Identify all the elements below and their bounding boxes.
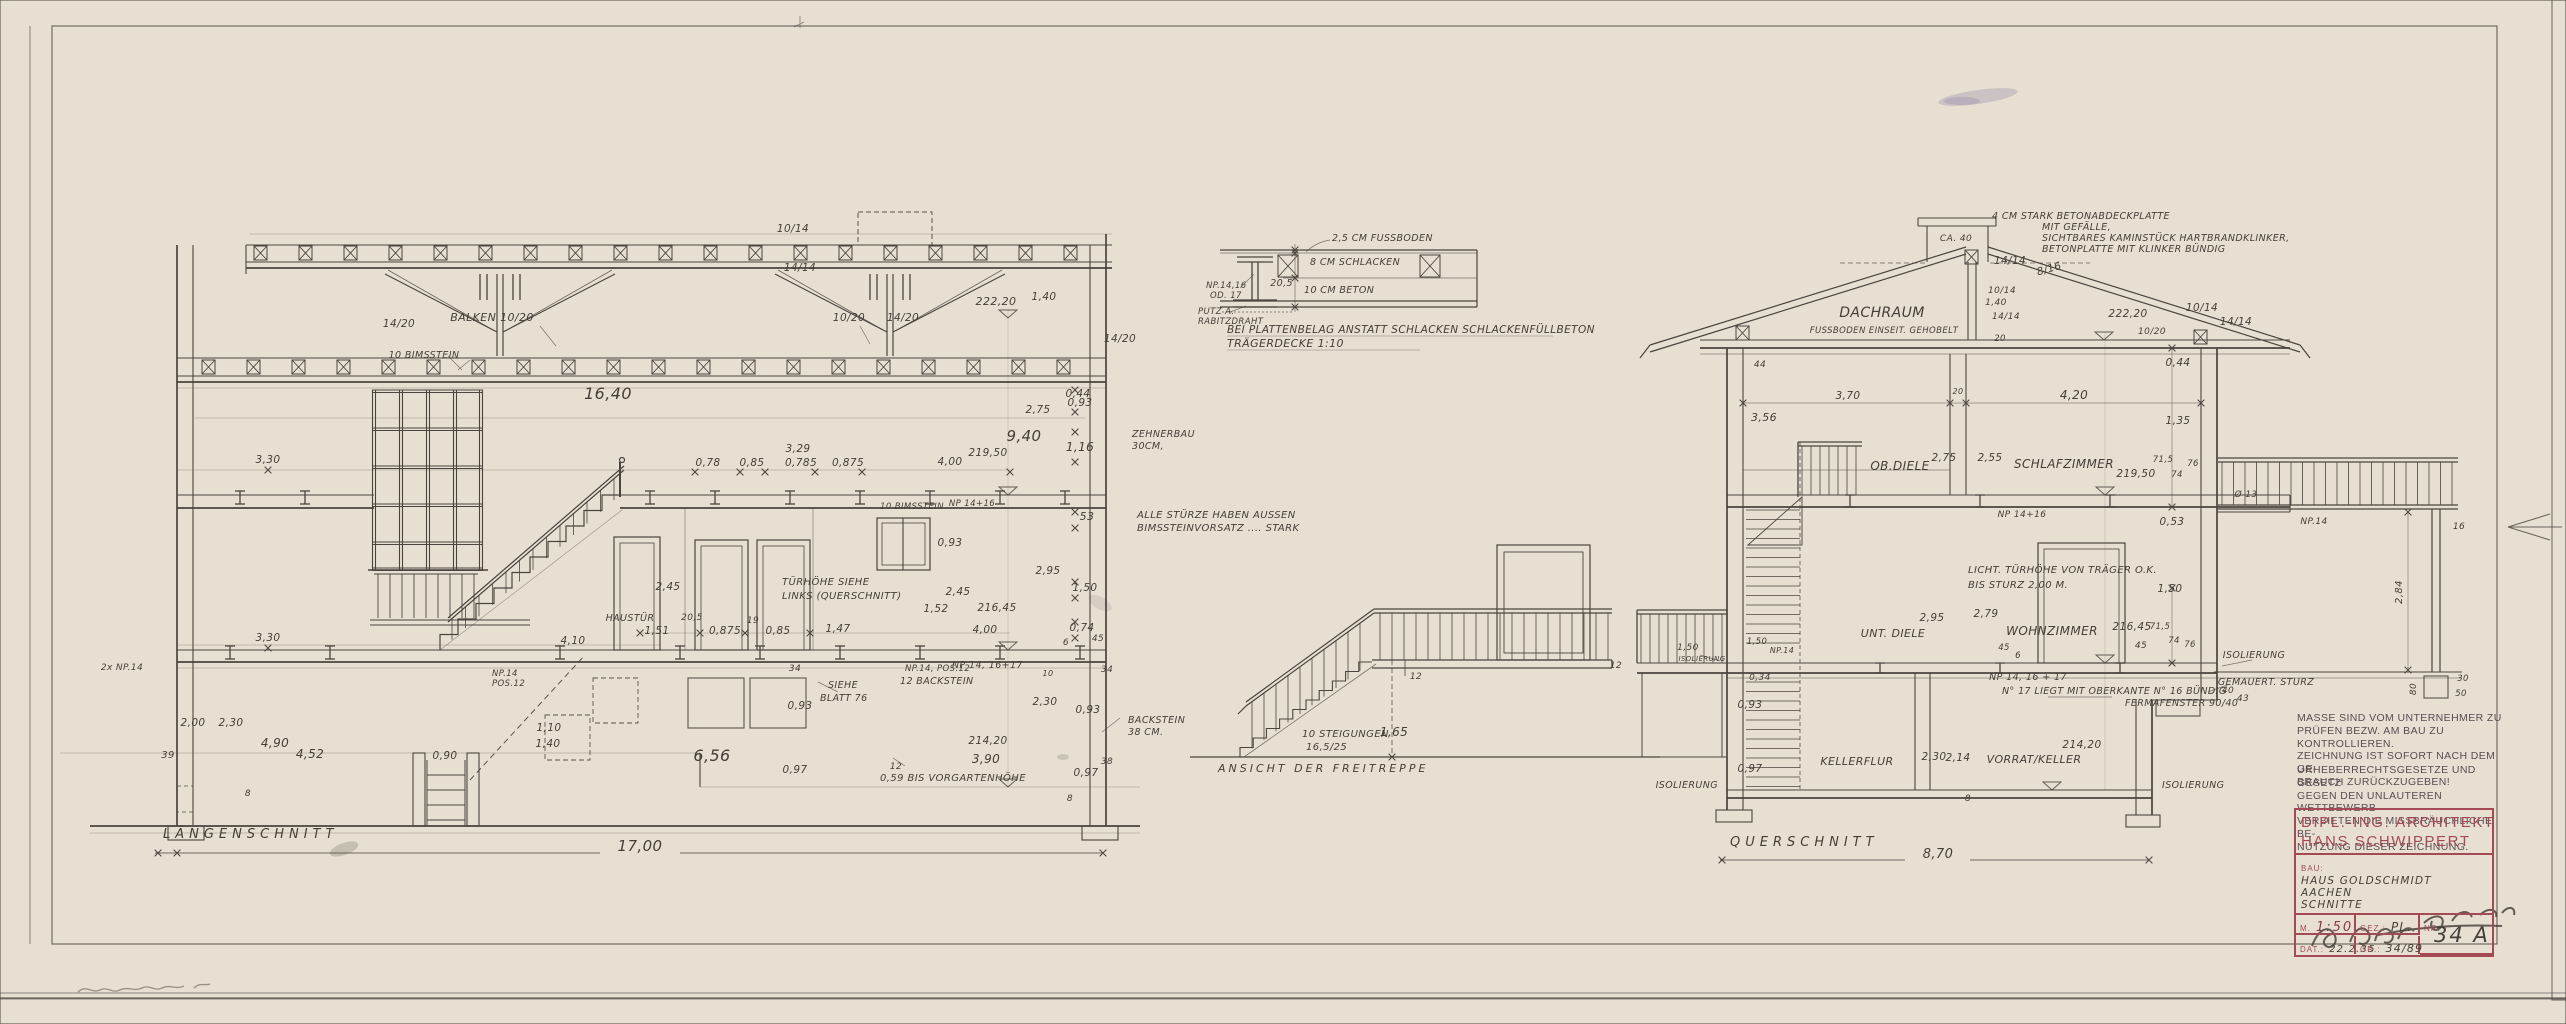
dim-label: 2x NP.14 [101,663,143,673]
dim-label: 16,5/25 [1306,742,1347,753]
dim-label: 1,50 [1073,582,1098,594]
dim-label: 8 [1965,794,1971,804]
sheet-frame [30,16,2562,944]
dim-label: 53 [1080,510,1095,523]
dim-label: KELLERFLUR [1820,755,1893,768]
dim-label: 10 STEIGUNGEN [1302,729,1389,740]
dim-label: 0,93 [1738,699,1763,711]
dim-label: 0,53 [2160,516,2185,528]
dim-label: 16,40 [584,384,632,403]
dim-label: 1,35 [2166,415,2191,427]
dat-field: DAT.: 22.2.35 [2296,936,2356,954]
dim-label: 39 [161,750,175,761]
project-field: BAU: HAUS GOLDSCHMIDT AACHEN SCHNITTE [2296,855,2492,915]
dim-label: 2,95 [1036,565,1061,577]
note-line: PRÜFEN BEZW. AM BAU ZU KONTROLLIEREN. [2297,725,2502,751]
dim-label: 2,14 [1946,752,1971,764]
laengsschnitt-labels: 10/1414/1414/20BALKEN 10/2010/2014/2014/… [101,223,1301,804]
dim-label: 38 CM. [1128,727,1163,738]
dim-label: 1,16 [1066,440,1094,454]
dim-label: 6,56 [693,746,730,765]
architect-surname: HANS SCHWIPPERT [2301,832,2487,851]
freitreppe-drawing [1190,545,1660,757]
dim-label: 4 CM STARK BETONABDECKPLATTE [1992,211,2170,222]
dim-label: ISOLIERUNG [1678,655,1725,663]
gr-field: GR.: 34/89 [2356,936,2420,954]
laengsschnitt-overall-dim: 17,00 [618,837,663,855]
dim-label: 10/20 [2138,327,2166,337]
dim-label: SCHLAFZIMMER [2014,457,2114,471]
dim-label: 6 [1063,638,1069,648]
dim-label: 30CM, [1132,441,1164,452]
dim-label: Ø 13 [2234,489,2258,500]
dim-label: NP.14 [1770,646,1794,655]
dim-label: NP.14 [2300,517,2327,527]
dim-label: 45 [1998,643,2010,653]
dim-label: TÜRHÖHE SIEHE [782,575,870,588]
dim-label: 20,5 [681,613,703,623]
dim-label: 34 [789,664,801,674]
scale-label: M. [2300,924,2311,933]
dim-label: 44 [1754,360,1766,370]
dim-label: 76 [2184,640,2196,650]
dim-label: 4,52 [296,747,324,761]
dim-label: 1,50 [2158,583,2183,595]
dim-label: 216,45 [2112,621,2151,633]
dim-label: 71,5 [2153,455,2174,465]
dim-label: FUSSBODEN EINSEIT. GEHOBELT [1810,326,1959,336]
dim-label: 1,50 [1747,637,1768,647]
dim-label: 0,97 [783,764,808,776]
dim-label: 10/20 [833,312,865,324]
dim-label: 3,29 [786,443,811,455]
dim-label: 219,50 [968,447,1007,459]
dim-label: 0,44 [2166,357,2191,369]
dim-label: 0,97 [1738,763,1763,775]
dim-label: 2,55 [1978,452,2003,464]
dim-label: 80 [2409,683,2419,695]
dim-label: 4,10 [561,635,586,647]
dim-label: 3,30 [256,632,281,644]
dim-label: 2,00 [181,717,206,729]
scale-value: 1:50 [2316,920,2353,935]
dim-label: 10/14 [2186,302,2218,314]
querschnitt-title: QUERSCHNITT [1730,835,1879,850]
dim-label: 4,00 [938,456,963,468]
paper-right-edge [2552,0,2566,1000]
dim-label: 2,5 CM FUSSBODEN [1332,233,1433,244]
dim-label: WOHNZIMMER [2006,624,2098,638]
dim-label: 0,93 [1068,397,1093,409]
dim-label: 8 [1067,794,1073,804]
dim-label: 12 [1610,661,1622,671]
dim-label: 14/20 [887,312,919,324]
dim-label: 10 [1043,669,1054,678]
dim-label: BETONPLATTE MIT KLINKER BÜNDIG [2042,244,2226,255]
dim-label: FERMAFENSTER 90/40 [2125,698,2238,709]
dim-label: 0,875 [832,457,864,469]
dim-label: 2,84 [2394,580,2405,604]
dim-label: 0,875 [709,625,741,637]
architect-title: DIPL.-ING. ARCHITEKT [2301,813,2487,832]
dim-label: 0,90 [433,750,458,762]
dim-label: 12 BACKSTEIN [900,676,974,687]
dim-label: 2,30 [1922,751,1947,763]
dim-label: DACHRAUM [1839,305,1925,321]
blueprint-sheet: 10/1414/1414/20BALKEN 10/2010/2014/2014/… [0,0,2566,1024]
dim-label: 9,40 [1007,427,1042,445]
dim-label: 74 [2171,470,2183,480]
pencil-note [78,984,210,992]
dim-label: OB.DIELE [1870,459,1929,473]
dim-label: 4,90 [261,736,289,750]
dim-label: 76 [2187,459,2199,469]
dim-label: 2,30 [219,717,244,729]
dim-label: MIT GEFÄLLE, [2042,222,2111,233]
dim-label: 3,56 [1751,411,1777,424]
gez-label: GEZ.: [2360,924,2386,933]
gez-value: PL. [2391,920,2412,934]
dim-label: 0,93 [1076,704,1101,716]
dim-label: ZEHNERBAU [1131,429,1195,440]
dim-label: 2,45 [946,586,971,598]
freitreppe-caption: ANSICHT DER FREITREPPE [1217,762,1428,775]
dim-label: 3,70 [1836,390,1861,402]
dim-label: 222,20 [2108,308,2147,320]
dim-label: NP.14,16 [1206,281,1247,291]
dim-label: NP.14 [492,669,518,679]
dim-label: 8 [245,789,251,799]
dim-label: 0,785 [785,457,817,469]
bau-label: BAU: [2301,864,2324,873]
dim-label: 6 [2015,651,2021,661]
nr-value: 34 A [2434,923,2490,947]
dim-label: 0,97 [1074,767,1099,779]
dim-label: 219,50 [2116,468,2155,480]
dim-label: 1,40 [1032,291,1057,303]
dim-label: 1,10 [537,722,562,734]
dim-label: 3,90 [972,752,1000,766]
dim-label: LINKS (QUERSCHNITT) [782,591,901,602]
project-name: HAUS GOLDSCHMIDT AACHEN [2301,875,2487,899]
dim-label: NP 14, 16+17 [952,660,1023,671]
laengsschnitt-title: LÄNGENSCHNITT [163,826,338,842]
dim-label: 45 [1092,634,1104,644]
dim-label: BLATT 76 [820,693,868,704]
dim-label: 14/14 [784,262,816,274]
dim-label: 16 [2453,522,2465,532]
dim-label: N° 17 LIEGT MIT OBERKANTE N° 16 BÜNDIG [2002,686,2227,697]
dim-label: ISOLIERUNG [2162,780,2224,791]
traegerdecke-note: BEI PLATTENBELAG ANSTATT SCHLACKEN SCHLA… [1227,323,1595,336]
dim-label: SICHTBARES KAMINSTÜCK HARTBRANDKLINKER, [2042,233,2290,244]
dim-label: 30 [2457,674,2469,684]
dim-label: 2,75 [1026,404,1051,416]
dim-label: 74 [2168,636,2180,646]
dim-label: ISOLIERUNG [1656,780,1718,791]
dim-label: 0,93 [788,700,813,712]
querschnitt-overall-dim: 8,70 [1923,847,1954,862]
dim-label: OD. 17 [1210,291,1242,301]
dim-label: NP 14, 16 + 17 [1989,672,2067,683]
dim-label: BALKEN 10/20 [450,311,534,324]
title-block: DIPL.-ING. ARCHITEKT HANS SCHWIPPERT BAU… [2294,808,2494,957]
traegerdecke-title: TRÄGERDECKE 1:10 [1227,337,1344,350]
dim-label: NP 14+16 [1998,510,2047,520]
dim-label: 10 BIMSSTEIN [389,350,460,361]
dim-label: 214,20 [968,735,1007,747]
gr-value: 34/89 [2386,942,2424,955]
paper-stains [328,85,2019,860]
dim-label: 214,20 [2062,739,2101,751]
dim-label: 14/20 [1104,333,1136,345]
dim-label: 2,75 [1932,452,1957,464]
dim-label: 8 CM SCHLACKEN [1310,257,1400,268]
dim-label: 1,50 [1677,643,1699,653]
dim-label: 10 BIMSSTEIN [880,502,944,512]
dim-label: BIMSSTEINVORSATZ .... STARK [1137,523,1301,534]
dim-label: VORRAT/KELLER [1987,753,2082,766]
drawing-canvas: 10/1414/1414/20BALKEN 10/2010/2014/2014/… [0,0,2566,1024]
dim-label: ISOLIERUNG [2223,650,2285,661]
dat-label: DAT.: [2300,945,2324,954]
dim-label: 1,52 [924,603,949,615]
dim-label: 2,30 [1033,696,1058,708]
sheet-content: SCHNITTE [2301,899,2487,911]
dim-label: BIS STURZ 2,00 M. [1968,580,2068,591]
dim-label: 1,40 [536,738,561,750]
dim-label: CA. 40 [1940,234,1972,244]
dim-label: 14/14 [2220,316,2252,328]
freitreppe-labels: 10 STEIGUNGEN16,5/251,6512 [1302,672,1422,753]
architect-name: DIPL.-ING. ARCHITEKT HANS SCHWIPPERT [2296,810,2492,855]
traegerdecke-labels: 2,5 CM FUSSBODEN8 CM SCHLACKEN20,510 CM … [1198,233,1433,327]
dim-label: 43 [2237,694,2249,704]
dim-label: 1,40 [1985,298,2007,308]
dim-label: 0,74 [1070,622,1095,634]
dim-label: 20 [1953,387,1964,396]
gez-field: GEZ.: PL. [2356,915,2420,935]
dim-label: 0,78 [696,457,721,469]
note-line: URHEBERRECHTSGESETZE UND GESETZ [2297,764,2502,790]
dim-label: POS.12 [492,679,525,689]
dim-label: 4,20 [2060,388,2088,402]
dim-label: 1,47 [826,623,851,635]
dim-label: 34 [1101,665,1113,675]
dim-label: 19 [747,616,759,626]
dim-label: 216,45 [977,602,1016,614]
dim-label: 3,30 [256,454,281,466]
gr-label: GR.: [2360,945,2380,954]
dim-label: 12 [890,762,902,772]
dim-label: 20 [1994,334,2006,344]
dim-label: 71,5 [2150,622,2171,632]
dim-label: 0,93 [938,537,963,549]
dim-label: 1,51 [645,625,670,637]
dim-label: SIEHE [828,680,858,691]
dim-label: 12 [1410,672,1422,682]
dim-label: 20,5 [1270,278,1293,289]
edge-arrow-icon [2508,514,2562,540]
dim-label: PUTZ A. [1198,307,1235,317]
dim-label: LICHT. TÜRHÖHE VON TRÄGER O.K. [1968,563,2157,576]
dim-label: 1,65 [1380,725,1408,739]
scale-field: M. 1:50 [2296,915,2356,935]
dim-label: 45 [2135,641,2147,651]
dim-label: 14/20 [383,318,415,330]
note-line: MASSE SIND VOM UNTERNEHMER ZU [2297,712,2502,725]
dim-label: ALLE STÜRZE HABEN AUSSEN [1136,508,1296,521]
dim-label: 50 [2455,689,2467,699]
nr-field: NR. 34 A [2420,915,2492,955]
dim-label: BACKSTEIN [1128,715,1185,726]
scan-backing [0,998,2566,1024]
dim-label: NP 14+16 [949,499,995,509]
dim-label: 0,34 [1749,673,1771,683]
dim-label: 2,45 [656,581,681,593]
dim-label: 2,95 [1920,612,1945,624]
dim-label: HAUSTÜR [606,613,655,624]
dim-label: 2,79 [1974,608,1999,620]
dim-label: 38 [1101,757,1113,767]
dim-label: 14/14 [1992,312,2020,322]
dim-label: 222,20 [976,295,1017,308]
dim-label: 10 CM BETON [1304,285,1374,296]
dim-label: 10/14 [777,223,809,235]
title-block-grid: M. 1:50 GEZ.: PL. NR. 34 A DAT.: 22.2.35… [2296,915,2492,955]
dim-label: 0,59 BIS VORGARTENHÖHE [880,771,1026,784]
dim-label: UNT. DIELE [1861,627,1925,640]
dim-label: 10/14 [1988,286,2016,296]
dim-label: 0,85 [740,457,765,469]
dim-label: 0,85 [766,625,791,637]
dim-label: 4,00 [973,624,998,636]
dim-label: 14/14 [1994,255,2026,267]
